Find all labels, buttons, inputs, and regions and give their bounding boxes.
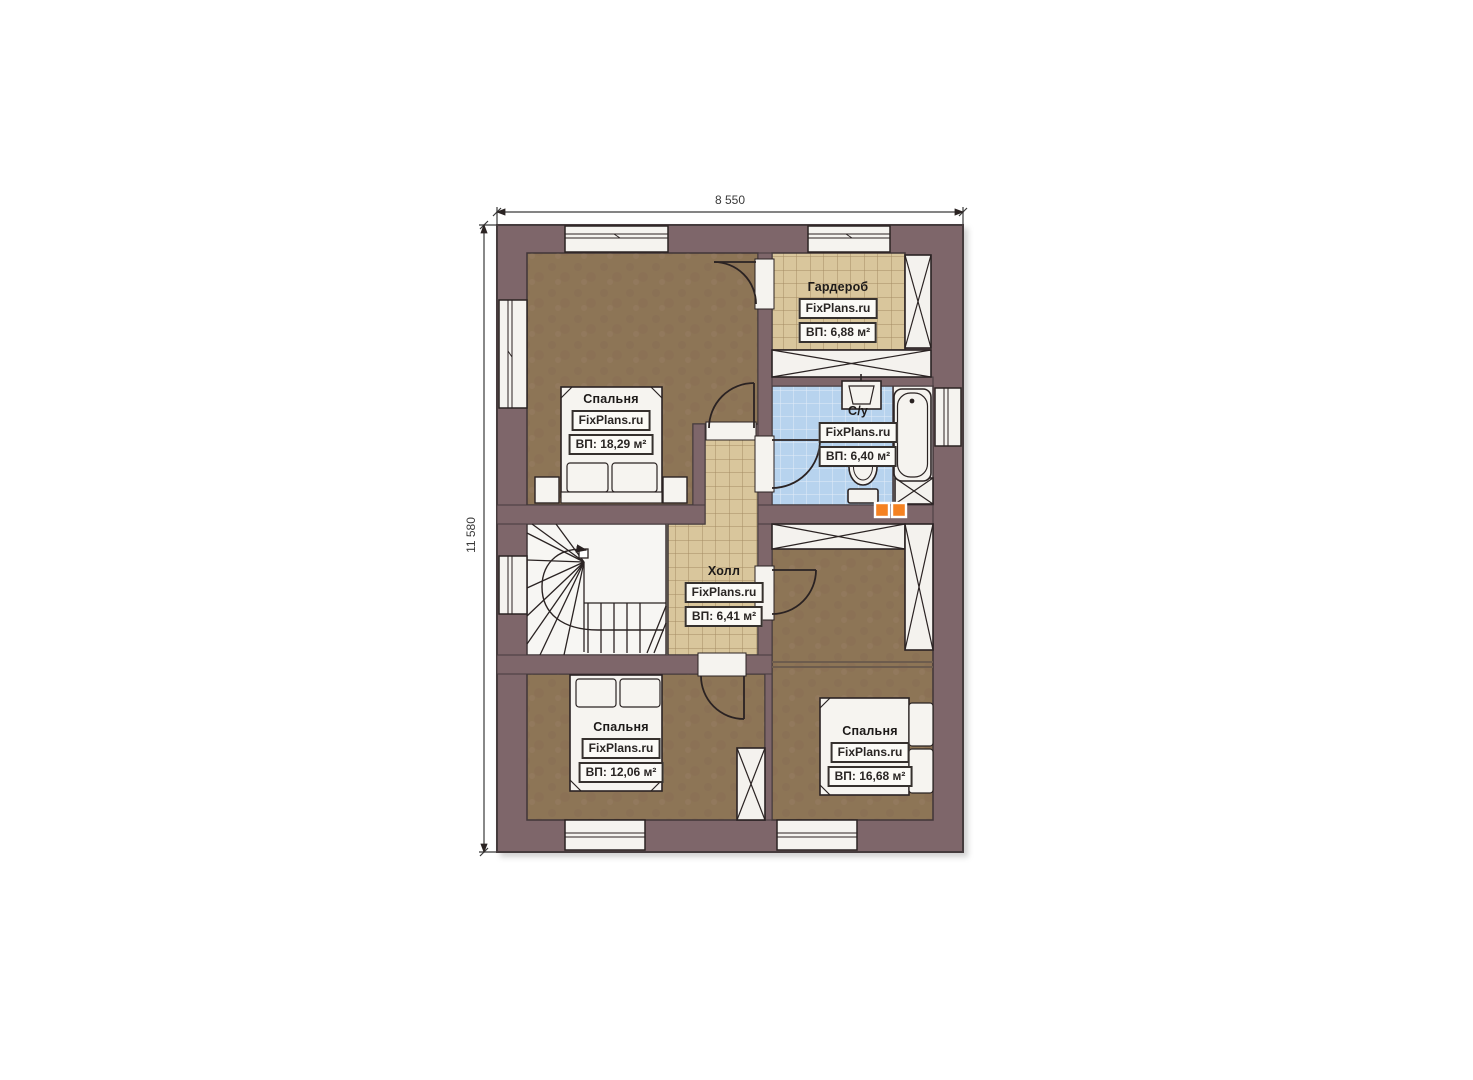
cabinet-bathroom-corner — [895, 478, 933, 504]
room-name: Спальня — [842, 724, 897, 738]
window-right-1 — [935, 388, 961, 446]
room-name: Гардероб — [808, 280, 869, 294]
room-label-bedroom-bottom-left: Спальня FixPlans.ru ВП: 12,06 м² — [579, 720, 664, 783]
closet-room-right-side — [905, 524, 933, 650]
dimension-width: 8 550 — [497, 193, 963, 207]
room-name: Холл — [708, 564, 740, 578]
room-label-hall: Холл FixPlans.ru ВП: 6,41 м² — [685, 564, 764, 627]
room-label-bedroom-bottom-right: Спальня FixPlans.ru ВП: 16,68 м² — [828, 724, 913, 787]
area-box: ВП: 6,88 м² — [799, 322, 877, 343]
floor-plan-drawing — [0, 0, 1473, 1080]
brand-box: FixPlans.ru — [582, 738, 661, 759]
brand-box: FixPlans.ru — [685, 582, 764, 603]
window-top-1 — [565, 226, 668, 252]
dimension-height: 11 580 — [464, 505, 478, 565]
nightstand-icon — [535, 477, 559, 503]
door-opening-bathroom — [755, 436, 774, 492]
pillow-icon — [612, 463, 657, 492]
window-left-2 — [499, 556, 527, 614]
room-label-wardrobe: Гардероб FixPlans.ru ВП: 6,88 м² — [799, 280, 878, 343]
window-top-2 — [808, 226, 890, 252]
vent-icon — [892, 503, 906, 517]
vent-icon — [875, 503, 889, 517]
closet-room-right-top — [772, 524, 905, 549]
area-box: ВП: 6,40 м² — [819, 446, 897, 467]
pillow-icon — [909, 703, 933, 746]
pillow-icon — [576, 679, 616, 707]
nightstand-icon — [663, 477, 687, 503]
closet-wardrobe-bottom — [772, 350, 931, 377]
window-bottom-2 — [777, 820, 857, 850]
door-opening-bedroom-top — [706, 422, 756, 440]
door-opening-wardrobe — [755, 259, 774, 309]
brand-box: FixPlans.ru — [572, 410, 651, 431]
closet-wardrobe-side — [905, 255, 931, 348]
pillow-icon — [620, 679, 660, 707]
door-opening-bedroom-bottom — [698, 653, 746, 676]
room-name: Спальня — [593, 720, 648, 734]
floor-plan-page: 8 550 11 580 Спальня FixPlans.ru ВП: 18,… — [0, 0, 1473, 1080]
area-box: ВП: 12,06 м² — [579, 762, 664, 783]
area-box: ВП: 18,29 м² — [569, 434, 654, 455]
room-label-bedroom-top: Спальня FixPlans.ru ВП: 18,29 м² — [569, 392, 654, 455]
closet-between-bedrooms — [737, 748, 765, 820]
room-label-bathroom: С/у FixPlans.ru ВП: 6,40 м² — [819, 404, 898, 467]
area-box: ВП: 16,68 м² — [828, 766, 913, 787]
brand-box: FixPlans.ru — [799, 298, 878, 319]
window-bottom-1 — [565, 820, 645, 850]
area-box: ВП: 6,41 м² — [685, 606, 763, 627]
pillow-icon — [567, 463, 608, 492]
brand-box: FixPlans.ru — [819, 422, 898, 443]
stair-newel-post — [579, 549, 588, 558]
headboard — [561, 492, 662, 503]
bathtub-icon — [894, 389, 931, 481]
room-name: Спальня — [583, 392, 638, 406]
window-left-1 — [499, 300, 527, 408]
room-name: С/у — [848, 404, 868, 418]
pillow-icon — [909, 749, 933, 793]
brand-box: FixPlans.ru — [831, 742, 910, 763]
